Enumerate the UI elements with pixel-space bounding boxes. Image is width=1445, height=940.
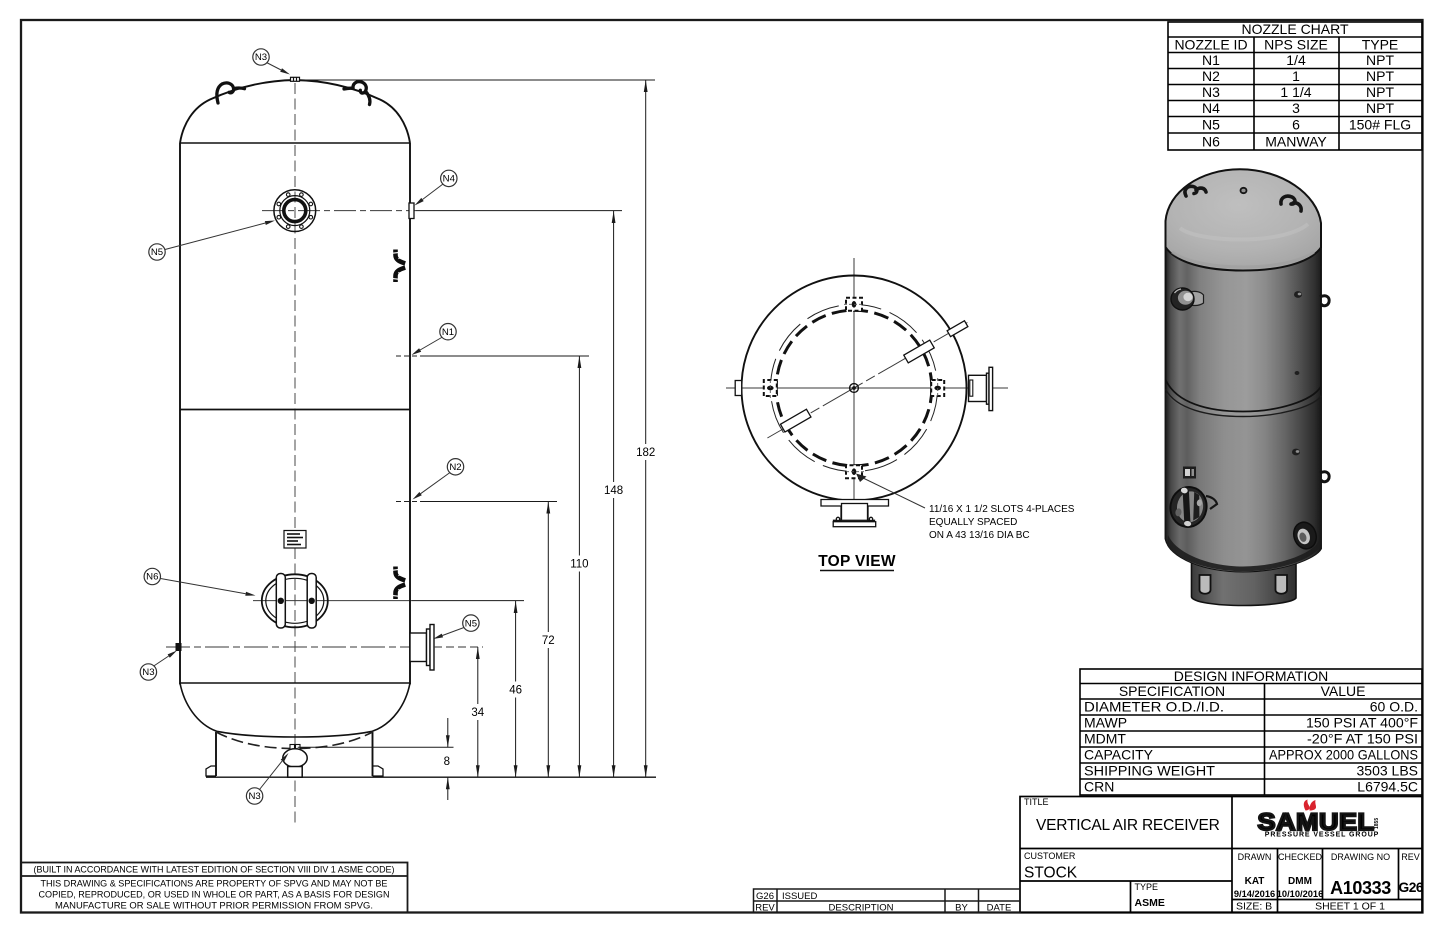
- svg-text:APPROX 2000 GALLONS: APPROX 2000 GALLONS: [1269, 747, 1418, 763]
- svg-text:N1: N1: [442, 327, 454, 338]
- svg-text:N3: N3: [248, 791, 260, 802]
- svg-text:MDMT: MDMT: [1084, 731, 1126, 747]
- svg-text:9/14/2016: 9/14/2016: [1234, 889, 1275, 899]
- svg-text:NOZZLE ID: NOZZLE ID: [1174, 37, 1247, 53]
- svg-text:N5: N5: [465, 618, 477, 629]
- svg-text:DRAWN: DRAWN: [1238, 852, 1272, 862]
- svg-text:N5: N5: [1202, 117, 1220, 133]
- svg-text:3503 LBS: 3503 LBS: [1357, 763, 1419, 779]
- svg-text:N6: N6: [1202, 134, 1220, 150]
- svg-text:1/4: 1/4: [1286, 52, 1306, 68]
- svg-text:N4: N4: [443, 174, 456, 185]
- svg-text:NOZZLE CHART: NOZZLE CHART: [1241, 21, 1349, 37]
- svg-text:CHECKED: CHECKED: [1278, 852, 1323, 862]
- svg-text:TYPE: TYPE: [1362, 37, 1399, 53]
- svg-text:VERTICAL AIR RECEIVER: VERTICAL AIR RECEIVER: [1036, 817, 1220, 834]
- svg-text:ISSUED: ISSUED: [782, 891, 818, 902]
- svg-text:TITLE: TITLE: [1024, 797, 1049, 807]
- svg-text:KAT: KAT: [1245, 876, 1265, 887]
- svg-text:REV: REV: [755, 903, 775, 914]
- svg-text:148: 148: [604, 485, 623, 497]
- svg-text:NPT: NPT: [1366, 84, 1394, 100]
- svg-text:N5: N5: [151, 247, 163, 258]
- svg-text:3: 3: [1292, 100, 1300, 116]
- svg-text:NPS SIZE: NPS SIZE: [1264, 37, 1328, 53]
- svg-text:N3: N3: [142, 667, 154, 678]
- svg-text:THIS DRAWING & SPECIFICATIONS: THIS DRAWING & SPECIFICATIONS ARE PROPER…: [41, 879, 388, 890]
- svg-text:CUSTOMER: CUSTOMER: [1024, 851, 1076, 861]
- svg-text:DIAMETER O.D./I.D.: DIAMETER O.D./I.D.: [1084, 699, 1224, 715]
- svg-text:DESIGN INFORMATION: DESIGN INFORMATION: [1174, 668, 1329, 684]
- svg-text:CRN: CRN: [1084, 779, 1114, 795]
- svg-text:MAWP: MAWP: [1084, 715, 1127, 731]
- svg-text:(BUILT IN ACCORDANCE WITH LATE: (BUILT IN ACCORDANCE WITH LATEST EDITION…: [34, 865, 395, 876]
- svg-text:COPIED, REPRODUCED, OR USED IN: COPIED, REPRODUCED, OR USED IN WHOLE OR …: [39, 890, 390, 901]
- svg-text:TYPE: TYPE: [1135, 882, 1159, 892]
- svg-text:DRAWING NO: DRAWING NO: [1331, 852, 1390, 862]
- svg-text:MANUFACTURE OR SALE WITHOUT PR: MANUFACTURE OR SALE WITHOUT PRIOR PERMIS…: [55, 901, 373, 912]
- svg-text:46: 46: [509, 685, 522, 697]
- svg-text:N6: N6: [146, 572, 158, 583]
- svg-text:N3: N3: [255, 52, 267, 63]
- svg-text:150# FLG: 150# FLG: [1349, 117, 1411, 133]
- svg-text:NPT: NPT: [1366, 68, 1394, 84]
- svg-text:110: 110: [570, 559, 588, 571]
- svg-text:1: 1: [1292, 68, 1300, 84]
- svg-text:STOCK: STOCK: [1024, 865, 1078, 882]
- svg-text:N2: N2: [1202, 68, 1220, 84]
- svg-text:N1: N1: [1202, 52, 1220, 68]
- svg-text:L6794.5C: L6794.5C: [1357, 779, 1418, 795]
- svg-text:PRESSURE VESSEL GROUP: PRESSURE VESSEL GROUP: [1265, 832, 1379, 839]
- svg-text:N4: N4: [1202, 100, 1220, 116]
- svg-text:SHEET 1 OF 1: SHEET 1 OF 1: [1315, 901, 1385, 913]
- svg-text:DESCRIPTION: DESCRIPTION: [829, 903, 894, 914]
- svg-text:1 1/4: 1 1/4: [1280, 84, 1311, 100]
- svg-text:ON A 43 13/16 DIA BC: ON A 43 13/16 DIA BC: [929, 530, 1030, 541]
- svg-text:11/16 X 1 1/2 SLOTS 4-PLACES: 11/16 X 1 1/2 SLOTS 4-PLACES: [929, 504, 1075, 515]
- svg-text:6: 6: [1292, 117, 1300, 133]
- svg-text:ASME: ASME: [1135, 897, 1165, 909]
- svg-text:8: 8: [444, 756, 450, 768]
- svg-text:EQUALLY SPACED: EQUALLY SPACED: [929, 517, 1017, 528]
- svg-text:60 O.D.: 60 O.D.: [1370, 699, 1418, 715]
- svg-text:N2: N2: [449, 462, 461, 473]
- svg-text:NPT: NPT: [1366, 100, 1394, 116]
- svg-text:72: 72: [542, 635, 555, 647]
- svg-text:182: 182: [636, 447, 655, 459]
- svg-text:SHIPPING WEIGHT: SHIPPING WEIGHT: [1084, 763, 1215, 779]
- svg-text:N3: N3: [1202, 84, 1220, 100]
- svg-text:DMM: DMM: [1288, 876, 1312, 887]
- svg-text:REV: REV: [1401, 852, 1420, 862]
- svg-text:SPECIFICATION: SPECIFICATION: [1119, 683, 1225, 699]
- svg-text:BY: BY: [955, 903, 968, 914]
- svg-text:1855: 1855: [1374, 818, 1380, 829]
- svg-text:TOP VIEW: TOP VIEW: [818, 553, 896, 570]
- svg-text:DATE: DATE: [987, 903, 1012, 914]
- svg-text:G26: G26: [756, 891, 774, 902]
- svg-text:10/10/2016: 10/10/2016: [1277, 889, 1324, 899]
- svg-text:VALUE: VALUE: [1321, 683, 1366, 699]
- svg-text:CAPACITY: CAPACITY: [1084, 747, 1154, 763]
- svg-text:150 PSI AT 400°F: 150 PSI AT 400°F: [1306, 715, 1418, 731]
- svg-text:SIZE: B: SIZE: B: [1236, 901, 1272, 913]
- svg-text:A10333: A10333: [1330, 878, 1391, 898]
- svg-text:34: 34: [471, 707, 484, 719]
- svg-text:-20°F AT 150 PSI: -20°F AT 150 PSI: [1307, 731, 1418, 747]
- svg-text:MANWAY: MANWAY: [1265, 134, 1327, 150]
- svg-text:NPT: NPT: [1366, 52, 1394, 68]
- svg-text:G26: G26: [1399, 880, 1424, 895]
